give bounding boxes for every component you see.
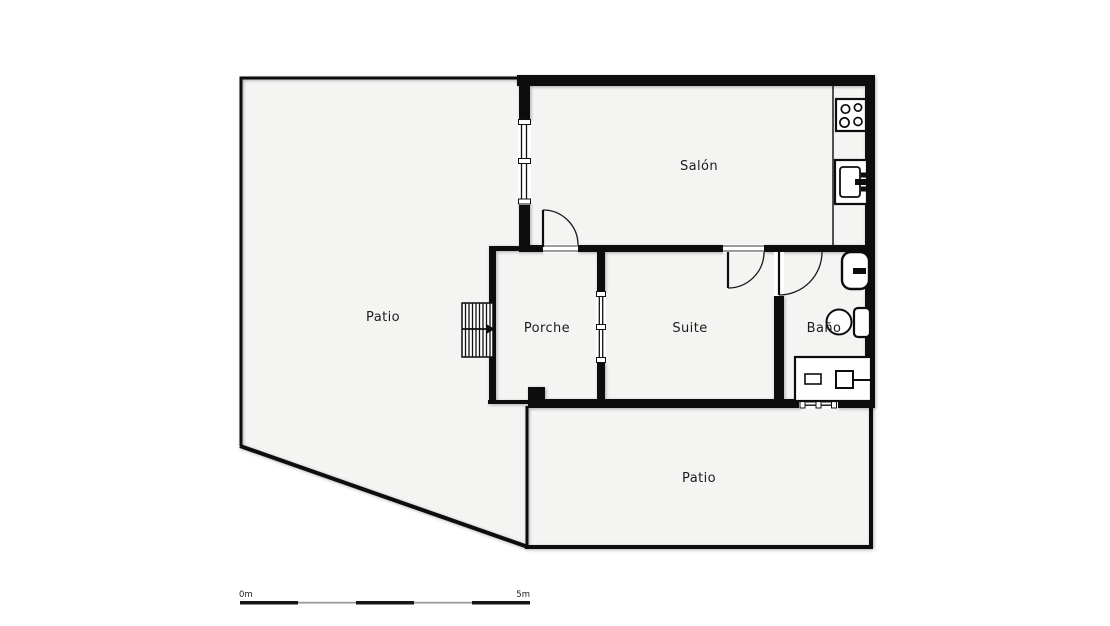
floor-plan-svg: Salón Patio Porche Suite Baño Patio 0m 5… (0, 0, 1110, 626)
window-icon (518, 119, 531, 205)
label-patio-bottom: Patio (682, 471, 716, 486)
scale-segment (472, 601, 530, 605)
scale-segment (414, 602, 472, 604)
wall-top (517, 75, 875, 86)
wall-salon-bottom-a (519, 245, 543, 252)
floor-plan-page: Salón Patio Porche Suite Baño Patio 0m 5… (0, 0, 1110, 626)
label-bano: Baño (807, 321, 842, 336)
window-icon (596, 291, 606, 363)
wall-salon-bottom-b (578, 245, 723, 252)
stairs-icon (462, 303, 495, 357)
wall-porche-suite-lower (597, 362, 605, 403)
scale-segment (240, 601, 298, 605)
scale-start-label: 0m (239, 590, 253, 600)
washbasin-icon (842, 252, 869, 289)
label-suite: Suite (672, 321, 707, 336)
stove-burners-icon (836, 99, 866, 131)
label-salon: Salón (680, 159, 718, 174)
wall-suite-bano (774, 296, 784, 403)
wall-bottom-a (528, 399, 800, 408)
scale-bar: 0m 5m (239, 590, 530, 605)
label-patio-left: Patio (366, 310, 400, 325)
wall-porche-suite-upper (597, 252, 605, 292)
kitchen-sink-icon (835, 160, 867, 204)
porche-slab-edge (488, 400, 530, 404)
scale-segment (356, 601, 414, 605)
wall-salon-left-lower (519, 203, 530, 252)
label-porche: Porche (524, 321, 570, 336)
wall-salon-left-upper (519, 75, 530, 120)
scale-end-label: 5m (516, 590, 530, 600)
scale-segment (298, 602, 356, 604)
vanity-counter-icon (795, 357, 871, 401)
